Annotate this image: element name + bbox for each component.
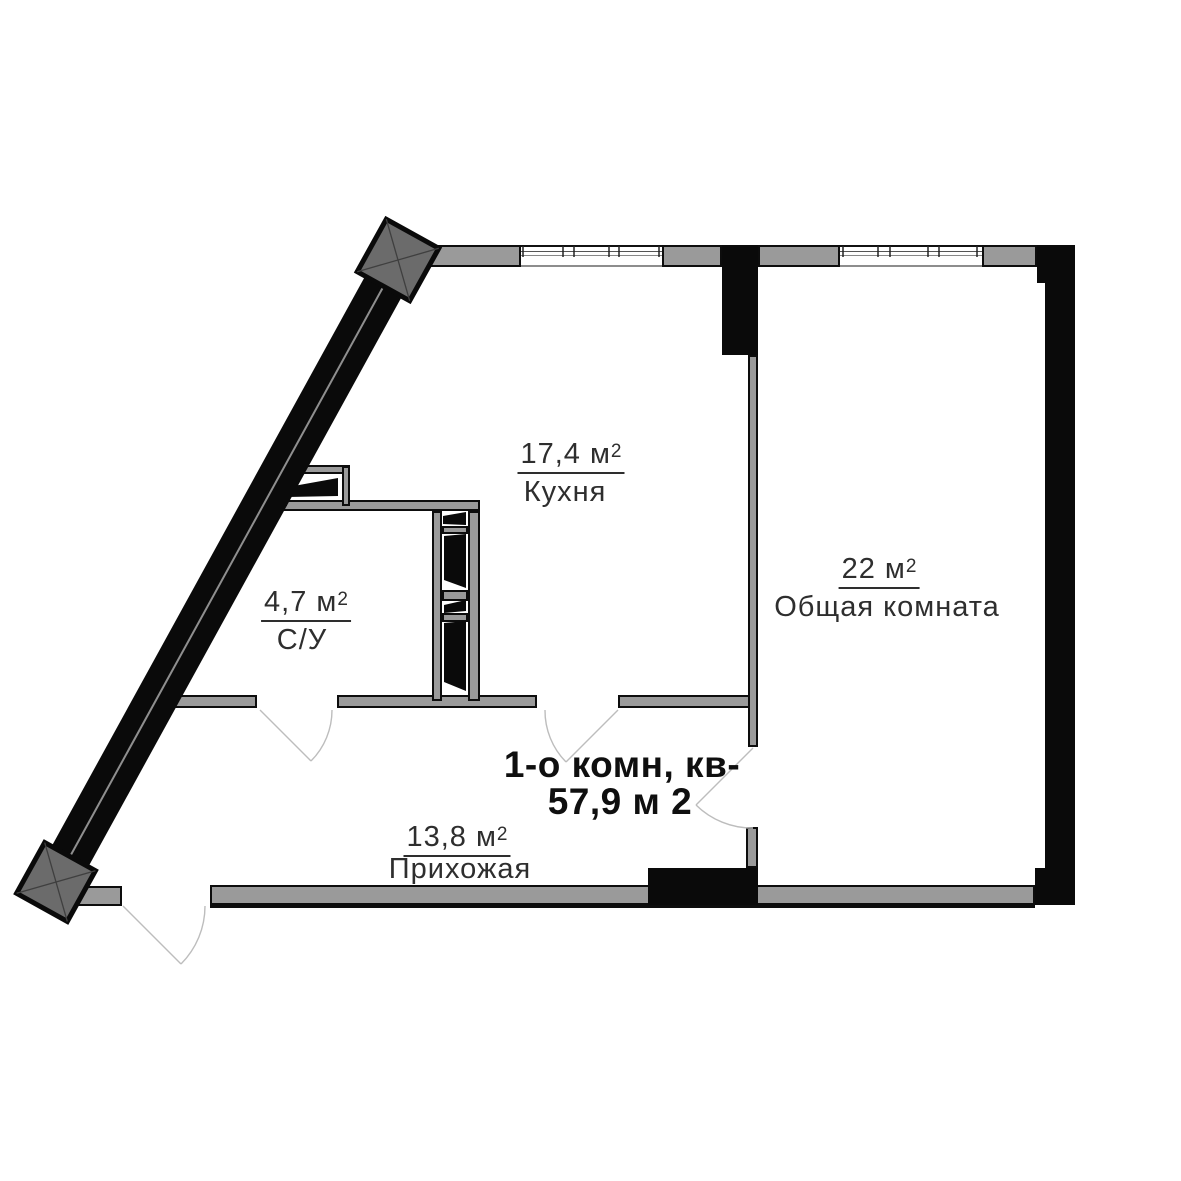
bathroom-door-leaf <box>260 710 311 761</box>
livingroom-area-value: 22 м <box>842 553 906 585</box>
vent-wedge <box>444 621 466 691</box>
livingroom-door-arc <box>696 805 753 828</box>
hallway-name-label: Прихожая <box>389 853 531 886</box>
kitchen-area-sup: 2 <box>611 441 622 462</box>
vent-wedge <box>443 512 466 525</box>
vent-wedge <box>444 534 466 588</box>
kitchen-area-label: 17,4 м2 <box>517 438 624 471</box>
bathroom-area-sup: 2 <box>337 589 348 610</box>
entrance-door-arc <box>181 906 205 964</box>
livingroom-area-sup: 2 <box>906 556 917 577</box>
hallway-area-label: 13,8 м2 <box>403 821 510 854</box>
hallway-area-value: 13,8 м <box>406 821 496 853</box>
apartment-summary-line1: 1-о комн, кв- <box>504 744 740 786</box>
livingroom-area-label: 22 м2 <box>839 553 920 586</box>
kitchen-area-value: 17,4 м <box>520 438 610 470</box>
hallway-area-sup: 2 <box>497 824 508 845</box>
entrance-door-leaf <box>123 906 181 964</box>
floor-plan: 17,4 м2 Кухня 22 м2 Общая комната 4,7 м2… <box>0 0 1181 1181</box>
window-mullion-ticks <box>523 246 977 257</box>
diagonal-wall-centerline <box>56 260 398 882</box>
livingroom-name-label: Общая комната <box>774 591 1000 624</box>
apartment-summary-line2: 57,9 м 2 <box>548 781 693 823</box>
bathroom-name-label: С/У <box>277 624 327 657</box>
bathroom-area-value: 4,7 м <box>264 586 337 618</box>
vent-wedge <box>444 600 466 613</box>
bathroom-area-label: 4,7 м2 <box>261 586 351 619</box>
plan-overlay <box>0 0 1181 1181</box>
kitchen-name-label: Кухня <box>524 476 607 509</box>
bathroom-door-arc <box>311 710 332 761</box>
